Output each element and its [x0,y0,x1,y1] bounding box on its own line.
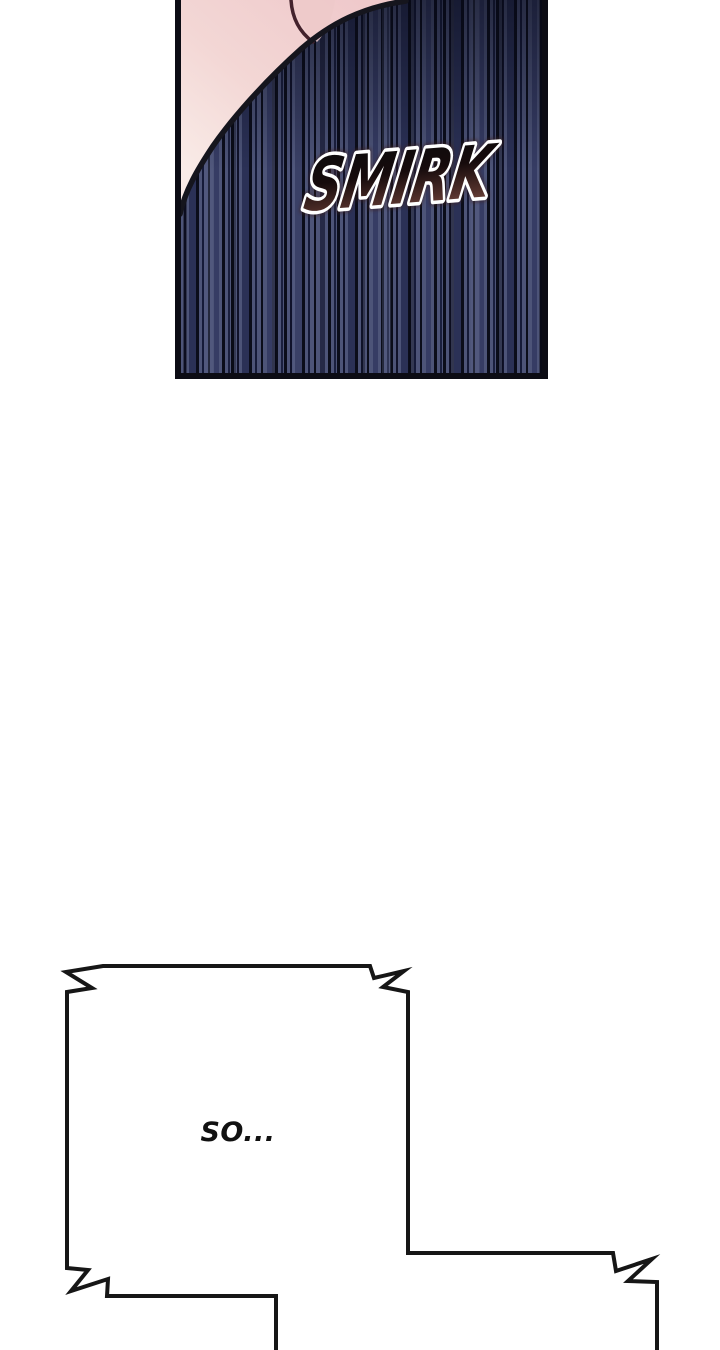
speech-bubble-group: SO... [66,966,657,1350]
jagged-speech-bubble [66,966,657,1350]
comic-artwork: SMIRK SMIRK SO... [0,0,720,1350]
panel-smirk: SMIRK SMIRK [175,0,548,379]
speech-bubble-text: SO... [200,1117,275,1148]
comic-page: SMIRK SMIRK SO... [0,0,720,1350]
sfx-smirk-text: SMIRK [299,129,502,229]
